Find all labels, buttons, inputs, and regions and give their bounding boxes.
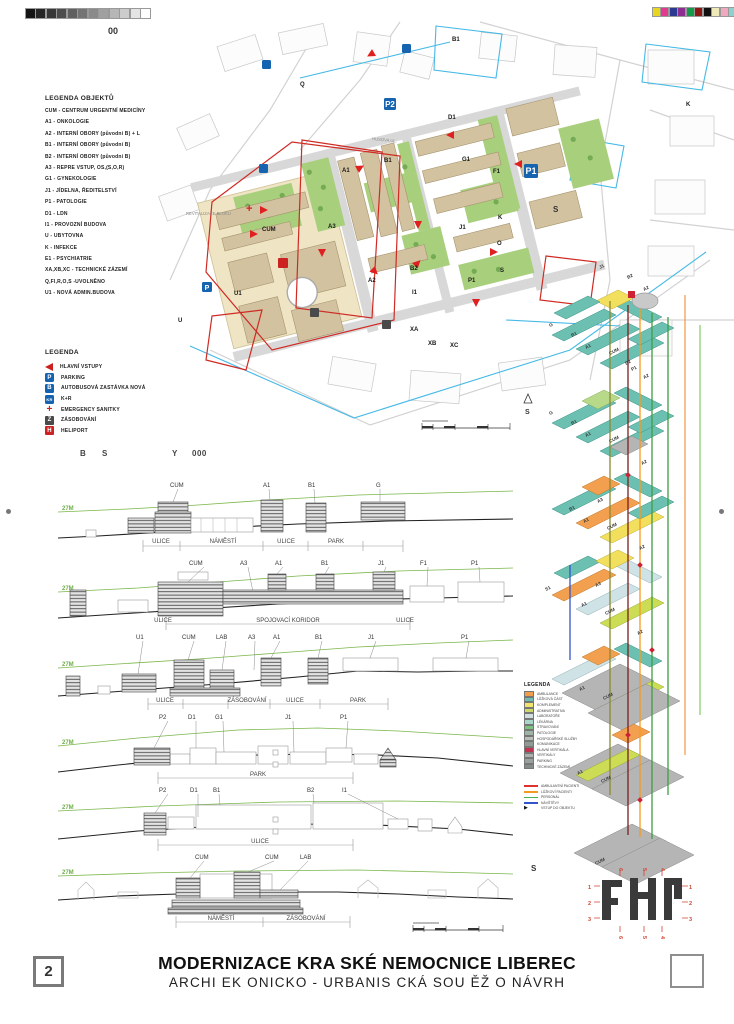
svg-text:B1: B1	[452, 37, 460, 43]
svg-text:ULICE: ULICE	[277, 539, 295, 545]
svg-text:ULICE: ULICE	[286, 698, 304, 704]
entry-arrow-icon: ▶	[524, 805, 538, 811]
svg-text:P2: P2	[159, 715, 167, 721]
svg-text:G: G	[548, 322, 554, 328]
svg-text:F1: F1	[493, 169, 501, 175]
symbol-label: PARKING	[61, 375, 85, 381]
svg-text:27M: 27M	[62, 740, 74, 746]
svg-text:2: 2	[689, 901, 692, 907]
heliport-icon	[278, 258, 288, 268]
svg-text:B2: B2	[626, 273, 634, 280]
svg-text:J1: J1	[459, 225, 466, 231]
axon-level-4	[552, 550, 664, 629]
flow-line	[524, 797, 538, 799]
svg-text:5: 5	[641, 936, 647, 939]
svg-text:I1: I1	[342, 788, 348, 794]
axon-legend-title: LEGENDA	[524, 682, 604, 688]
svg-text:A2: A2	[642, 285, 650, 292]
supply-icon: Z	[45, 416, 54, 425]
svg-text:S: S	[500, 268, 504, 274]
axon-legend: LEGENDA AMBULANCE LŮŽKOVÁ ČÁST KOMPLEMEN…	[524, 682, 604, 811]
svg-text:1: 1	[588, 885, 591, 891]
svg-text:B1: B1	[321, 561, 329, 567]
color-calibration-bar	[652, 7, 734, 17]
symbol-label: HLAVNÍ VSTUPY	[60, 364, 102, 370]
bus-stop-icon: B	[45, 384, 54, 393]
svg-text:CUM: CUM	[265, 855, 279, 861]
parking-icon: P	[45, 373, 54, 382]
parking-icon: P1	[525, 166, 536, 176]
svg-text:2: 2	[588, 901, 591, 907]
svg-text:Q: Q	[300, 82, 305, 88]
svg-text:LAB: LAB	[216, 635, 227, 641]
parking-icon: P	[205, 285, 210, 292]
section-building-labels: CUM CUM LAB	[195, 855, 311, 861]
svg-text:U: U	[178, 318, 182, 324]
axon-heliport-icon	[628, 291, 635, 298]
emergency-cross-icon: +	[246, 203, 252, 215]
svg-text:A2: A2	[368, 278, 376, 284]
flow-line	[524, 802, 538, 804]
svg-text:XB: XB	[428, 341, 437, 347]
sheet-code: 00	[108, 26, 118, 36]
svg-text:PARK: PARK	[350, 698, 366, 704]
heliport-icon: H	[45, 426, 54, 435]
svg-text:CUM: CUM	[189, 561, 203, 567]
section-street-labels: NÁMĚSTÍ ZÁSOBOVÁNÍ	[208, 914, 326, 922]
svg-text:J1: J1	[598, 263, 605, 270]
svg-text:27M: 27M	[62, 805, 74, 811]
svg-text:B2: B2	[410, 266, 418, 272]
svg-text:NÁMĚSTÍ: NÁMĚSTÍ	[208, 914, 235, 922]
svg-text:S1: S1	[544, 585, 552, 592]
svg-text:LAB: LAB	[300, 855, 311, 861]
kiss-and-ride-icon	[259, 164, 268, 173]
symbol-label: ZÁSOBOVÁNÍ	[61, 417, 96, 423]
poster-title: MODERNIZACE KRA SKÉ NEMOCNICE LIBEREC	[0, 953, 734, 974]
map-scale-bar	[422, 420, 510, 430]
sections-heading-y: Y	[172, 449, 178, 458]
svg-text:B1: B1	[384, 158, 392, 164]
symbol-label: HELIPORT	[61, 428, 88, 434]
flow-line	[524, 785, 538, 787]
north-arrow: S	[524, 394, 532, 416]
section-5: 27M P2 D1 B1 B2 I1 ULICE	[58, 783, 513, 853]
key-plan-footprint	[602, 878, 682, 920]
svg-text:D1: D1	[190, 788, 198, 794]
svg-text:J1: J1	[285, 715, 292, 721]
svg-text:ZÁSOBOVÁNÍ: ZÁSOBOVÁNÍ	[286, 915, 325, 922]
svg-text:A3: A3	[248, 635, 256, 641]
svg-text:P1: P1	[468, 278, 476, 284]
svg-text:A3: A3	[240, 561, 248, 567]
svg-text:PARK: PARK	[328, 539, 344, 545]
svg-text:B2: B2	[307, 788, 315, 794]
section-building-labels: P2 D1 G1 J1 P1	[159, 715, 348, 721]
svg-text:XA: XA	[410, 327, 419, 333]
section-building-labels: CUM A1 B1 G	[170, 483, 381, 489]
svg-text:27M: 27M	[62, 870, 74, 876]
svg-text:U1: U1	[234, 291, 242, 297]
section-street-labels: ULICE NÁMĚSTÍ ULICE PARK	[152, 537, 344, 545]
bus-stop-icon	[402, 44, 411, 53]
svg-text:XC: XC	[450, 343, 459, 349]
svg-text:G: G	[376, 483, 381, 489]
registration-dot-left	[6, 509, 11, 514]
svg-text:ULICE: ULICE	[156, 698, 174, 704]
svg-text:S: S	[525, 409, 530, 416]
svg-text:U1: U1	[136, 635, 144, 641]
section-street-labels: ULICE	[251, 839, 269, 845]
poster-page: { "page": { "sheet_code": "00", "sheet_n…	[0, 0, 734, 1024]
svg-text:5: 5	[641, 868, 647, 871]
svg-text:CUM: CUM	[170, 483, 184, 489]
svg-text:6: 6	[617, 936, 623, 939]
svg-text:P1: P1	[340, 715, 348, 721]
section-building-labels: P2 D1 B1 B2 I1	[159, 788, 348, 794]
svg-text:O: O	[497, 241, 502, 247]
svg-text:P1: P1	[630, 365, 638, 372]
svg-text:P1: P1	[461, 635, 469, 641]
section-building-labels: U1 CUM LAB A3 A1 B1 J1 P1	[136, 635, 469, 641]
svg-text:G1: G1	[462, 157, 471, 163]
svg-text:G: G	[548, 410, 554, 416]
axon-view-label-bottom: S	[531, 864, 536, 873]
svg-text:ULICE: ULICE	[396, 618, 414, 624]
section-3: 27M U1 CUM LAB A3 A1 B1 J1 P1 ULICE ZÁSO…	[58, 630, 513, 710]
axon-view-label-top: S	[553, 205, 558, 214]
svg-text:1: 1	[689, 885, 692, 891]
svg-text:A2: A2	[636, 629, 644, 636]
section-street-labels: PARK	[250, 772, 266, 778]
section-2: 27M CUM A3 A1 B1 J1 F1 P1 ULICE SPOJOVAC…	[58, 556, 513, 631]
svg-text:27M: 27M	[62, 506, 74, 512]
section-street-labels: ULICE ZÁSOBOVÁNÍ ULICE PARK	[156, 697, 366, 704]
svg-text:P1: P1	[471, 561, 479, 567]
svg-text:B1: B1	[213, 788, 221, 794]
svg-text:D1: D1	[448, 115, 456, 121]
symbol-label: K+R	[61, 396, 72, 402]
section-scale-bar	[413, 922, 503, 932]
svg-text:ZÁSOBOVÁNÍ: ZÁSOBOVÁNÍ	[227, 697, 266, 704]
symbol-label: AUTOBUSOVÁ ZASTÁVKA NOVÁ	[61, 385, 146, 391]
svg-text:6: 6	[617, 868, 623, 871]
svg-text:A2: A2	[642, 373, 650, 380]
svg-text:3: 3	[689, 917, 692, 923]
svg-text:A1: A1	[273, 635, 281, 641]
svg-text:K: K	[686, 102, 691, 108]
svg-text:G1: G1	[215, 715, 224, 721]
svg-text:A1: A1	[342, 168, 350, 174]
sections-heading-000: 000	[192, 449, 207, 458]
grayscale-calibration-bar	[25, 8, 151, 19]
svg-text:A2: A2	[640, 459, 648, 466]
svg-text:I1: I1	[412, 290, 418, 296]
poster-subtitle: ARCHI EK ONICKO - URBANIS CKÁ SOU ĚŽ O N…	[0, 975, 734, 990]
bus-stop-icon	[262, 60, 271, 69]
svg-text:CUM: CUM	[195, 855, 209, 861]
key-plan: 1 2 3 1 2 3 6 5 4 6 5 4	[586, 858, 696, 944]
supply-icon	[382, 320, 391, 329]
flow-line	[524, 791, 538, 793]
svg-text:ULICE: ULICE	[251, 839, 269, 845]
svg-text:3: 3	[588, 917, 591, 923]
section-1: 27M CUM A1 B1 G ULICE NÁMĚSTÍ ULICE PARK	[58, 478, 513, 556]
svg-text:A1: A1	[263, 483, 271, 489]
svg-text:27M: 27M	[62, 662, 74, 668]
emergency-cross-icon: +	[45, 405, 54, 414]
supply-icon	[310, 308, 319, 317]
svg-text:B1: B1	[315, 635, 323, 641]
svg-text:J1: J1	[368, 635, 375, 641]
section-street-labels: ULICE SPOJOVACÍ KORIDOR ULICE	[154, 617, 414, 624]
svg-text:SPOJOVACÍ KORIDOR: SPOJOVACÍ KORIDOR	[256, 617, 320, 624]
legend-swatch	[524, 764, 534, 770]
footer-empty-box	[670, 954, 704, 988]
svg-text:NÁMĚSTÍ: NÁMĚSTÍ	[210, 537, 237, 545]
block-note: REVITALIZACE BLOKU	[186, 211, 231, 216]
svg-text:A1: A1	[275, 561, 283, 567]
svg-text:ULICE: ULICE	[154, 618, 172, 624]
section-6: 27M CUM CUM LAB NÁMĚSTÍ ZÁSOBOVÁNÍ	[58, 850, 513, 940]
svg-text:B1: B1	[308, 483, 316, 489]
sections-heading-s: S	[102, 449, 108, 458]
svg-text:A3: A3	[328, 224, 336, 230]
svg-text:PARK: PARK	[250, 772, 266, 778]
section-building-labels: CUM A3 A1 B1 J1 F1 P1	[189, 561, 479, 567]
parking-icon: P2	[385, 100, 395, 109]
svg-text:ULICE: ULICE	[152, 539, 170, 545]
axon-heliport	[632, 293, 658, 309]
kiss-and-ride-icon: KR	[45, 395, 54, 404]
svg-text:K: K	[498, 215, 503, 221]
svg-text:4: 4	[659, 936, 665, 940]
symbol-label: EMERGENCY SANITKY	[61, 407, 120, 413]
svg-text:D1: D1	[188, 715, 196, 721]
entrance-arrow-icon	[45, 363, 53, 371]
svg-text:CUM: CUM	[182, 635, 196, 641]
svg-text:CUM: CUM	[262, 227, 276, 233]
svg-text:P2: P2	[159, 788, 167, 794]
svg-text:F1: F1	[420, 561, 428, 567]
sections-heading-b: B	[80, 449, 86, 458]
svg-text:J1: J1	[378, 561, 385, 567]
section-4: 27M P2 D1 G1 J1 P1 PARK	[58, 710, 513, 785]
